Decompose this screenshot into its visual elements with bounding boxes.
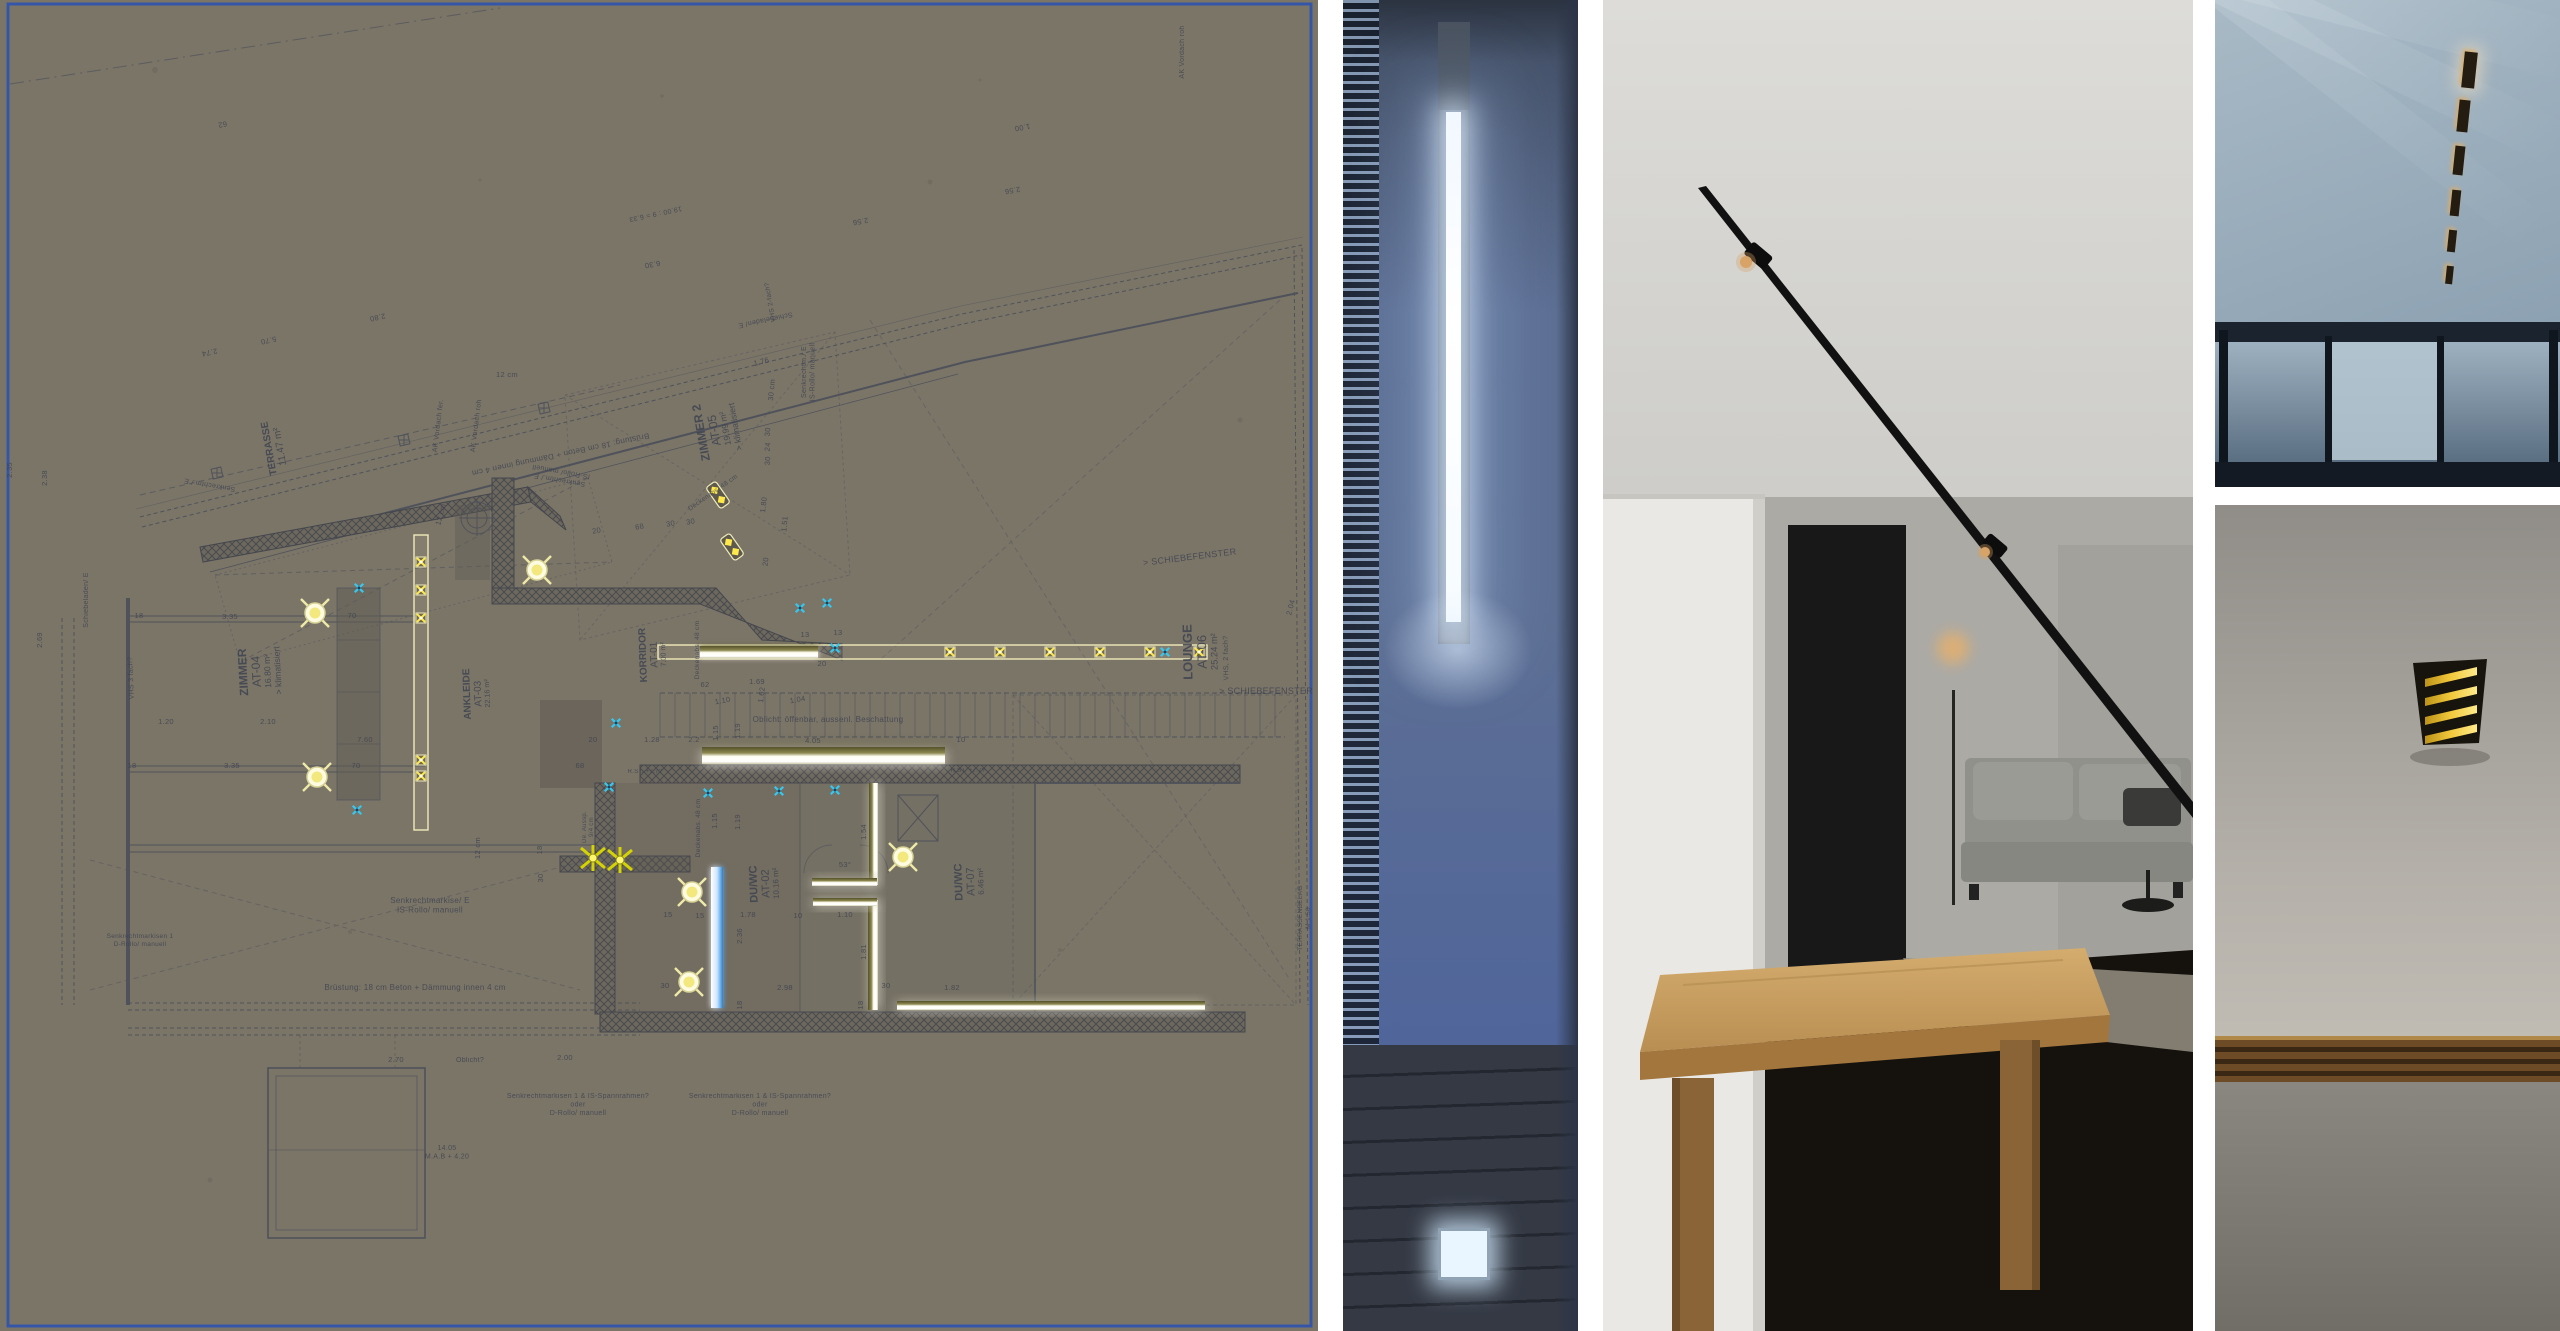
sun-light-symbol <box>889 843 917 871</box>
plan-note: > SCHIEBEFENSTER <box>1219 686 1313 696</box>
plan-dimension: 30 cm <box>766 378 777 401</box>
plan-dimension: 1.80 <box>758 496 769 513</box>
frosted-pane <box>2330 342 2438 460</box>
glow-bar <box>897 1001 1205 1010</box>
plan-dimension: 2.98 <box>777 983 793 992</box>
plan-note: Senkrechtmarkise/ EIS-Rollo/ manuell <box>390 896 470 915</box>
plan-dimension: 70 <box>352 761 361 770</box>
plan-dimension: 20 <box>591 525 601 535</box>
plan-dimension: 2.70 <box>388 1055 404 1064</box>
plan-dimension: 30 <box>661 981 670 990</box>
plan-dimension: 12 cm <box>496 370 518 379</box>
plan-dimension: 18 <box>735 1001 744 1010</box>
plan-dimension: 30 <box>685 516 695 526</box>
plan-dimension: 1.20 <box>158 717 174 726</box>
recessed-dash-light-2 <box>2456 100 2470 133</box>
plan-note: Senkrechtmarkisen 1D-Rollo/ manuell <box>107 933 174 948</box>
plan-note: Deckenabs. 48 cm <box>695 799 702 858</box>
slot-floor-glow <box>1383 590 1533 710</box>
glow-bar <box>813 898 877 906</box>
sun-light-symbol <box>678 878 706 906</box>
strip-lamp-symbol <box>416 585 426 595</box>
plan-dimension: 30 <box>536 874 545 883</box>
plan-dimension: 70 <box>348 611 357 620</box>
strip-lamp-symbol <box>1045 647 1055 657</box>
plan-dimension: 1.54 <box>859 824 868 840</box>
plan-note: R.ST. +7.7? <box>628 769 663 775</box>
plan-dimension: 13 <box>801 630 810 639</box>
plan-dimension: 2.35 <box>5 462 14 478</box>
recessed-dash-light-1 <box>2461 51 2478 88</box>
ankleide-light-strip <box>414 535 428 830</box>
dark-doorway <box>1788 525 1906 980</box>
recessed-dash-light-4 <box>2450 190 2462 217</box>
plan-dimension: 15 <box>696 911 705 920</box>
plan-dimension: 3.35 <box>224 761 240 770</box>
sun-light-symbol <box>301 599 329 627</box>
strip-lamp-symbol <box>416 557 426 567</box>
slot-floor <box>1343 1045 1578 1331</box>
plan-dimension: 1.82 <box>944 983 960 992</box>
plan-dimension: 4.05 <box>805 736 821 745</box>
sun-light-symbol <box>523 556 551 584</box>
plan-dimension: 1.19 <box>733 814 742 830</box>
recessed-dash-light-5 <box>2447 230 2457 253</box>
sun-light-symbol <box>675 968 703 996</box>
plan-dimension: 1.62 <box>756 686 767 703</box>
strip-lamp-symbol <box>1095 647 1105 657</box>
room-label-du-wc: DU/WCAT-076.46 m² <box>952 863 986 901</box>
photo-interior-track-light <box>1603 0 2193 1331</box>
plan-dimension: 24 <box>763 442 773 452</box>
photo-louver-wall-lamp <box>2215 505 2560 1331</box>
plan-dimension: 12 cm <box>473 837 482 859</box>
strip-lamp-symbol <box>416 771 426 781</box>
plan-dimension: 10 <box>794 911 803 920</box>
plan-dimension: 1.28 <box>644 735 660 744</box>
plan-dimension: 18 <box>128 761 137 770</box>
strip-lamp-symbol <box>416 755 426 765</box>
plan-note: VHS 3 fach? <box>127 657 135 700</box>
strip-lamp-symbol <box>416 613 426 623</box>
plan-note: Schiebeladen/ E <box>83 572 90 628</box>
plan-dimension: 1.69 <box>749 677 765 686</box>
wall-washer-glow <box>1937 632 1969 664</box>
grey-wall <box>2215 505 2560 1041</box>
plan-note: R.ST. +7.7? <box>951 768 986 774</box>
plan-dimension: 7.60 <box>357 735 373 744</box>
plan-dimension: 68 <box>634 521 644 531</box>
glow-bar <box>868 900 878 1010</box>
glass-wall-frame <box>2215 322 2560 342</box>
plan-dimension: 30 <box>763 427 773 437</box>
plan-note: Brüstung: 18 cm Beton + Dämmung innen 4 … <box>324 983 505 992</box>
plan-dimension: 1.81 <box>859 944 868 960</box>
plan-note: Deckenabs. 48 cm <box>694 621 701 680</box>
plan-dimension: 20 <box>589 735 598 744</box>
plan-dimension: 30 <box>882 981 891 990</box>
plan-dimension: 1.15 <box>711 725 720 741</box>
photo-ceiling-dash-lights <box>2215 0 2560 487</box>
photo-vertical-slot-light <box>1343 0 1578 1331</box>
korridor-strip-core <box>700 646 818 658</box>
glow-bar <box>869 783 878 885</box>
plan-dimension: 2.00 <box>557 1053 573 1062</box>
plan-dimension: 1.10 <box>837 910 853 919</box>
plan-dimension: 2.2 <box>688 735 699 744</box>
plan-note: Oblicht? <box>456 1057 484 1064</box>
plan-dimension: 53° <box>839 860 851 869</box>
plan-dimension: 15 <box>664 910 673 919</box>
plan-dimension: 62 <box>701 680 710 689</box>
plan-dimension: 13 <box>834 628 843 637</box>
plan-note: Senkrechtm./ EIS-Rollo/ manuell <box>801 343 816 402</box>
floor-lamp-stem <box>1952 690 1955 905</box>
blue-light-bar <box>711 867 723 1008</box>
strip-lamp-symbol <box>995 647 1005 657</box>
plan-dimension: 18 <box>135 611 144 620</box>
couch <box>1961 758 2193 900</box>
glow-bar <box>702 747 945 764</box>
plan-dimension: 20 <box>818 659 827 668</box>
side-table-stem <box>2146 870 2150 905</box>
strip-lamp-symbol <box>945 647 955 657</box>
plan-dimension: 62 <box>217 119 228 130</box>
plan-dimension: 20 <box>761 557 771 567</box>
right-shadow <box>1556 0 1578 1331</box>
plan-dimension: 3.35 <box>222 612 238 621</box>
plan-dimension: 30 <box>763 456 773 466</box>
plan-dimension: 2.10 <box>260 717 276 726</box>
recessed-dash-light-3 <box>2453 146 2466 176</box>
plan-dimension: 1.19 <box>733 723 742 739</box>
plan-dimension: 68 <box>576 761 585 770</box>
floor-uplight <box>1438 1228 1490 1280</box>
lamp-shadow <box>2410 748 2490 766</box>
wood-beam <box>2215 1040 2560 1082</box>
slot-channel-top <box>1438 22 1470 110</box>
room-label-du-wc: DU/WCAT-0210.16 m² <box>747 865 781 903</box>
plan-dimension: 2.69 <box>35 632 44 648</box>
floorplan-panel: TERRASSE11.47 m²ZIMMERAT-0416.80 m²> kli… <box>0 0 1318 1331</box>
plan-dimension: 1.15 <box>710 813 719 829</box>
plan-dimension: 18 <box>856 1001 865 1010</box>
plan-dimension: 1.51 <box>779 516 789 533</box>
sun-light-symbol <box>303 763 331 791</box>
recessed-dash-light-6 <box>2445 266 2454 285</box>
window-blind-strip <box>1343 0 1379 1045</box>
glow-bar <box>812 878 877 886</box>
window-sill <box>2215 462 2560 487</box>
plan-note: Oblicht: öffenbar, aussenl. Beschattung <box>753 715 904 724</box>
plan-dimension: 1.78 <box>740 910 756 919</box>
floorplan-drawing: TERRASSE11.47 m²ZIMMERAT-0416.80 m²> kli… <box>0 0 1318 1331</box>
plan-dimension: 30 <box>665 518 675 528</box>
slot-light-core <box>1446 112 1461 622</box>
lower-wall <box>2215 1082 2560 1331</box>
plan-note: AK Vordach roh <box>1179 25 1186 78</box>
plan-dimension: 2.38 <box>40 470 49 486</box>
strip-lamp-symbol <box>1145 647 1155 657</box>
plan-dimension: 10 <box>957 735 966 744</box>
louver-lamp <box>2395 645 2505 775</box>
plan-dimension: 18 <box>535 846 544 855</box>
plan-note: VHS, 2 fach? <box>1223 636 1231 681</box>
plan-dimension: 2.36 <box>735 928 744 944</box>
